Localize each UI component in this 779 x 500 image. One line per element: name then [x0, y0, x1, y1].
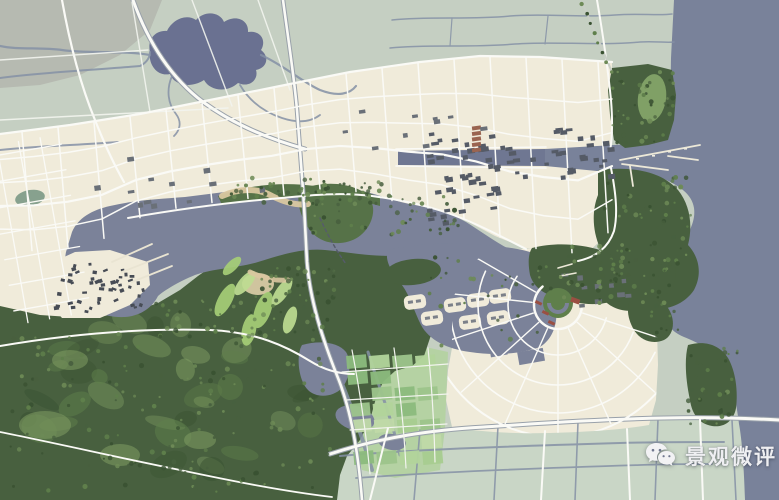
tree: [637, 89, 642, 94]
tree: [628, 261, 630, 263]
tree: [686, 398, 691, 403]
tree: [254, 194, 259, 199]
building: [559, 151, 566, 156]
tree: [627, 194, 630, 197]
tree: [102, 361, 105, 364]
roadside-tree: [585, 12, 589, 16]
tree: [645, 70, 649, 74]
building: [151, 203, 158, 209]
tree: [208, 389, 213, 394]
tree: [300, 187, 303, 190]
tree: [689, 214, 692, 217]
tree: [653, 141, 655, 143]
tree: [199, 323, 203, 327]
tree: [344, 192, 346, 194]
tree: [199, 377, 202, 380]
tree: [288, 290, 292, 294]
tree: [52, 436, 56, 440]
tree: [192, 475, 197, 480]
tree: [597, 251, 601, 255]
tree: [690, 388, 694, 392]
tree: [314, 215, 316, 217]
map-canvas: [0, 0, 779, 500]
tree: [389, 205, 393, 209]
tree: [722, 347, 726, 351]
tree: [444, 219, 447, 222]
building: [127, 156, 134, 161]
tree: [668, 79, 671, 82]
tree: [491, 274, 494, 277]
tree: [193, 364, 197, 368]
tree: [426, 212, 431, 217]
tree: [624, 209, 628, 213]
tree: [596, 280, 601, 285]
tree: [305, 299, 307, 301]
tree: [456, 259, 460, 263]
tree: [296, 273, 299, 276]
tree: [254, 369, 257, 372]
building: [625, 294, 631, 298]
tree: [365, 193, 368, 196]
tree: [614, 115, 616, 117]
tree: [559, 275, 563, 279]
tree: [317, 357, 321, 361]
tree: [298, 299, 301, 302]
tree: [20, 374, 24, 378]
tree: [626, 272, 630, 276]
tree: [298, 466, 301, 469]
tree: [501, 285, 504, 288]
tree: [168, 465, 172, 469]
tree: [652, 274, 655, 277]
tree: [88, 464, 91, 467]
tree: [269, 285, 272, 288]
building: [586, 143, 594, 148]
tree: [666, 97, 669, 100]
tree: [115, 464, 120, 469]
tree: [61, 357, 64, 360]
tree: [417, 197, 421, 201]
roadside-tree: [589, 22, 592, 25]
tree: [311, 313, 316, 318]
building: [523, 174, 528, 179]
tree: [246, 334, 251, 339]
roadside-tree: [596, 41, 599, 44]
tree: [114, 383, 118, 387]
tree: [261, 200, 266, 205]
tree: [724, 359, 727, 362]
tree: [343, 182, 346, 185]
tree: [103, 458, 105, 460]
tree: [129, 461, 134, 466]
roadside-tree: [601, 51, 604, 54]
tree: [660, 190, 662, 192]
tree: [611, 267, 615, 271]
tree: [671, 235, 676, 240]
tree: [562, 295, 566, 299]
building: [444, 176, 449, 181]
tree: [281, 463, 285, 467]
tree: [357, 196, 362, 201]
building: [169, 182, 175, 187]
tree: [374, 202, 377, 205]
tree: [232, 195, 236, 199]
tree: [325, 281, 330, 286]
tree: [233, 383, 235, 385]
tree: [215, 490, 217, 492]
tree: [463, 302, 466, 305]
tree: [537, 270, 539, 272]
tree: [197, 364, 201, 368]
tree: [80, 398, 85, 403]
tree: [62, 383, 67, 388]
building: [97, 297, 101, 301]
tree: [611, 124, 613, 126]
tree: [440, 277, 442, 279]
tree: [136, 345, 140, 349]
tree: [177, 324, 182, 329]
tree: [270, 421, 275, 426]
building: [92, 270, 97, 274]
tree: [315, 199, 320, 204]
tree: [294, 331, 297, 334]
tree: [222, 410, 225, 413]
tree: [250, 326, 253, 329]
tree: [653, 115, 657, 119]
tree: [162, 451, 166, 455]
tree: [159, 335, 162, 338]
tree: [320, 325, 325, 330]
tree: [624, 141, 627, 144]
tree: [664, 213, 668, 217]
tree: [650, 314, 653, 317]
building: [602, 159, 607, 163]
tree: [204, 448, 208, 452]
tree: [644, 87, 646, 89]
building: [137, 294, 140, 298]
tree: [695, 376, 698, 379]
tree: [322, 408, 324, 410]
tree: [278, 427, 283, 432]
tree: [487, 294, 490, 297]
tree: [277, 190, 280, 193]
tree: [650, 310, 653, 313]
building: [57, 292, 62, 296]
tree: [296, 266, 300, 270]
tree: [504, 279, 506, 281]
tree: [263, 385, 266, 388]
tree: [650, 209, 652, 211]
tree: [12, 485, 15, 488]
building: [203, 168, 210, 174]
tree: [606, 182, 609, 185]
tree: [665, 265, 667, 267]
tree: [239, 344, 243, 348]
building: [515, 171, 519, 174]
tree: [569, 280, 573, 284]
tree: [428, 292, 432, 296]
tree: [391, 232, 395, 236]
tree: [565, 278, 568, 281]
tree: [514, 282, 518, 286]
tree: [260, 286, 265, 291]
tree: [293, 275, 296, 278]
tree: [288, 201, 293, 206]
tree: [150, 449, 155, 454]
farm-plot: [350, 402, 371, 417]
tree: [321, 203, 323, 205]
tree: [409, 218, 412, 221]
tree: [197, 428, 200, 431]
tree: [179, 467, 183, 471]
tree: [666, 257, 671, 262]
tree: [180, 379, 183, 382]
tree: [318, 362, 323, 367]
tree: [10, 409, 14, 413]
farm-plot: [370, 370, 391, 385]
tree: [672, 82, 675, 85]
building: [530, 157, 536, 162]
tree: [236, 416, 240, 420]
tree: [575, 283, 579, 287]
tree: [225, 366, 230, 371]
tree: [246, 377, 249, 380]
tree: [350, 224, 354, 228]
tree: [655, 336, 657, 338]
tree: [110, 442, 113, 445]
tree: [634, 258, 638, 262]
tree: [640, 217, 642, 219]
tree: [237, 184, 240, 187]
tree: [193, 486, 198, 491]
tree: [620, 123, 622, 125]
tree: [597, 244, 602, 249]
tree: [312, 411, 316, 415]
tree: [263, 483, 265, 485]
building: [88, 263, 91, 266]
tree: [312, 270, 316, 274]
tree: [678, 185, 683, 190]
building: [468, 179, 476, 185]
tree: [270, 369, 272, 371]
tree: [452, 208, 457, 213]
tree: [616, 250, 618, 252]
tree: [311, 202, 314, 205]
tree: [104, 434, 109, 439]
tree: [20, 336, 25, 341]
tree: [239, 301, 243, 305]
tree: [257, 330, 262, 335]
roadside-tree: [610, 70, 614, 74]
tree: [161, 465, 166, 470]
tree: [614, 283, 618, 287]
farm-plot: [422, 450, 443, 465]
tree: [703, 419, 707, 423]
tree: [531, 283, 534, 286]
tree: [311, 231, 315, 235]
tree: [638, 83, 643, 88]
tree: [174, 439, 177, 442]
tree: [26, 405, 31, 410]
tree: [302, 283, 306, 287]
tree: [253, 318, 257, 322]
tree: [184, 471, 187, 474]
tree: [675, 261, 680, 266]
building: [560, 130, 567, 135]
tree: [339, 198, 342, 201]
tree: [324, 187, 328, 191]
tree: [332, 288, 336, 292]
tree: [158, 396, 160, 398]
tree: [598, 298, 601, 301]
tree: [536, 331, 539, 334]
tree: [620, 272, 623, 275]
tree: [273, 329, 275, 331]
tree: [703, 389, 708, 394]
tree: [446, 227, 450, 231]
tree: [665, 201, 670, 206]
roadside-tree: [604, 60, 608, 64]
building: [492, 187, 500, 193]
tree: [377, 188, 382, 193]
tree: [439, 232, 443, 236]
tree: [404, 222, 407, 225]
tree: [115, 394, 118, 397]
tree: [618, 80, 620, 82]
tree: [40, 351, 45, 356]
tree: [639, 139, 644, 144]
tree: [139, 363, 144, 368]
building: [464, 198, 471, 203]
tree: [85, 424, 88, 427]
tree: [187, 378, 189, 380]
tree: [276, 267, 279, 270]
tree: [622, 205, 627, 210]
building: [509, 151, 517, 156]
forest-glade: [184, 431, 216, 449]
tree: [538, 265, 543, 270]
tree: [232, 432, 234, 434]
tree: [360, 225, 364, 229]
building: [593, 158, 599, 162]
tree: [231, 327, 234, 330]
tree: [154, 302, 158, 306]
tree: [616, 273, 619, 276]
tree: [218, 319, 222, 323]
tree: [129, 391, 132, 394]
tree: [671, 104, 675, 108]
tree: [620, 256, 625, 261]
tree: [545, 265, 548, 268]
tree: [260, 278, 263, 281]
tree: [651, 289, 655, 293]
tree: [599, 222, 604, 227]
tree: [191, 461, 193, 463]
tree: [278, 193, 282, 197]
tree: [687, 409, 691, 413]
tree: [36, 345, 40, 349]
tree: [234, 189, 238, 193]
building: [485, 158, 492, 163]
tree: [664, 102, 667, 105]
tree: [152, 404, 157, 409]
tree: [597, 301, 601, 305]
building: [579, 155, 586, 160]
tree: [618, 215, 621, 218]
tree: [377, 180, 381, 184]
tree: [308, 459, 313, 464]
tree: [650, 244, 652, 246]
tree: [644, 135, 648, 139]
tree: [409, 203, 412, 206]
building: [460, 174, 466, 179]
tree: [211, 371, 216, 376]
tree: [218, 336, 220, 338]
tree: [620, 80, 623, 83]
tree: [205, 326, 210, 331]
tree: [412, 202, 415, 205]
tree: [634, 104, 636, 106]
tree: [620, 243, 624, 247]
tree: [339, 183, 342, 186]
tree: [348, 198, 353, 203]
building: [427, 209, 433, 214]
roadside-tree: [579, 2, 583, 6]
tree: [165, 326, 170, 331]
tree: [10, 445, 12, 447]
tree: [361, 191, 364, 194]
tree: [615, 297, 620, 302]
tree: [673, 185, 677, 189]
tree: [661, 221, 665, 225]
tree: [610, 178, 613, 181]
tree: [618, 137, 623, 142]
farm-plot: [394, 386, 415, 401]
building: [138, 202, 144, 208]
tree: [726, 412, 731, 417]
tree: [307, 279, 309, 281]
tree: [670, 95, 675, 100]
tree: [138, 463, 142, 467]
tree: [600, 273, 605, 278]
tree: [168, 445, 170, 447]
tree: [626, 179, 630, 183]
tree: [322, 321, 324, 323]
tree: [570, 245, 575, 250]
watermark: 景观微评: [644, 441, 777, 471]
building: [494, 167, 500, 172]
tree: [650, 257, 654, 261]
tree: [727, 353, 729, 355]
tree: [232, 484, 236, 488]
tree: [698, 398, 701, 401]
tree: [333, 295, 335, 297]
tree: [720, 414, 725, 419]
tree: [643, 275, 645, 277]
tree: [285, 190, 290, 195]
tree: [650, 104, 653, 107]
tree: [644, 292, 647, 295]
tree: [629, 250, 631, 252]
farm-plot: [369, 354, 390, 369]
tree: [671, 71, 675, 75]
tree: [632, 284, 637, 289]
tree: [320, 196, 324, 200]
tree: [26, 433, 29, 436]
tree: [686, 225, 688, 227]
tree: [672, 310, 675, 313]
building: [435, 190, 442, 195]
